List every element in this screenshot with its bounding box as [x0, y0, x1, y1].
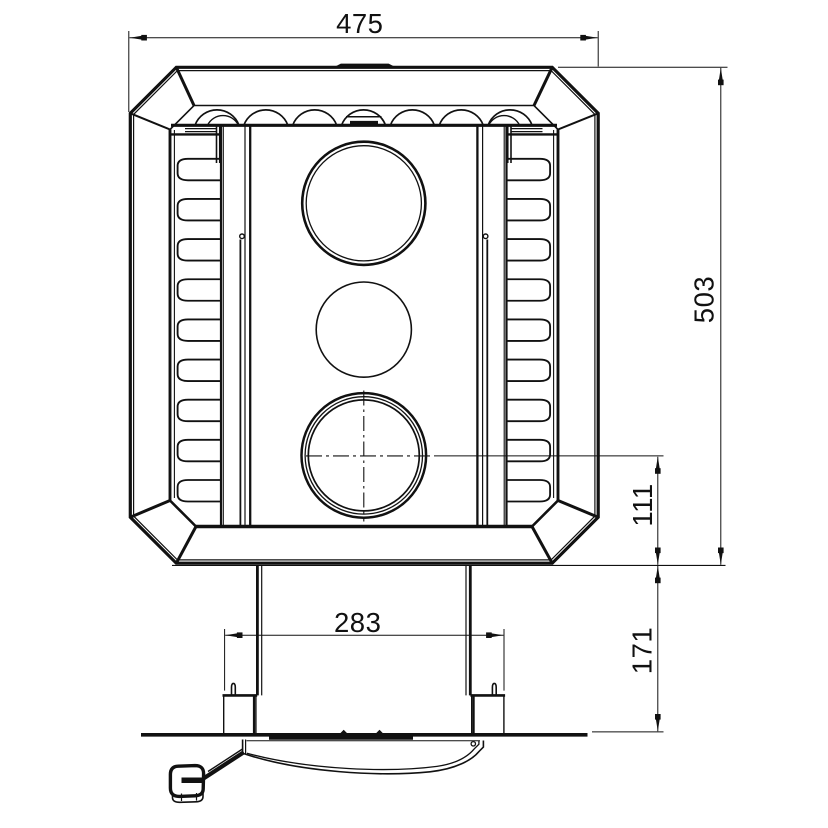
- svg-text:503: 503: [689, 276, 720, 323]
- svg-text:475: 475: [336, 8, 383, 39]
- svg-text:171: 171: [626, 627, 657, 674]
- svg-text:111: 111: [627, 483, 658, 526]
- svg-text:283: 283: [334, 607, 381, 638]
